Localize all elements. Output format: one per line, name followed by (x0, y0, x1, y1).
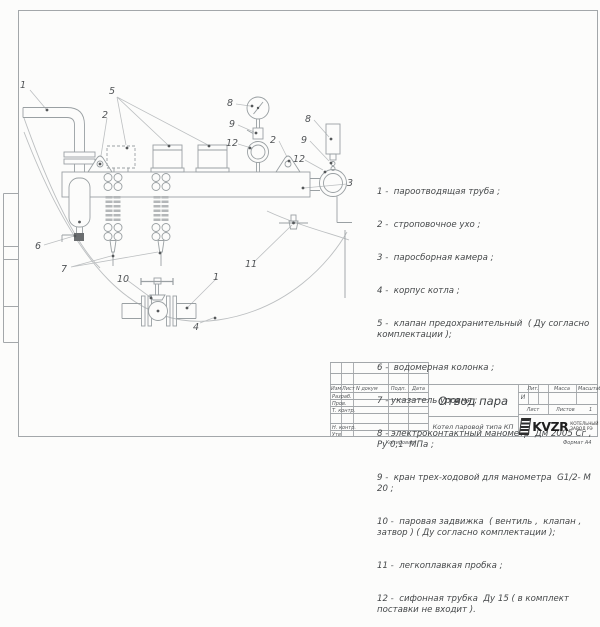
callout-boiler-body: 4 (193, 322, 199, 333)
legend-item-1: 1 - пароотводящая труба ; (377, 187, 600, 198)
steam-outlet-schematic (23, 97, 352, 326)
tb-row-razrab: Разраб. (332, 394, 352, 400)
legend-item-4: 4 - корпус котла ; (377, 286, 600, 297)
water-gauge-column (62, 178, 90, 242)
callout-chamber: 3 (347, 178, 353, 189)
callout-water-column: 6 (35, 241, 41, 252)
kvzr-logo-caption: КОТЕЛЬНЫЙ ЗАВОД РЭ (570, 422, 600, 432)
legend-item-11: 11 - легкоплавкая пробка ; (377, 561, 600, 572)
callout-siphon-front: 12 (226, 138, 238, 149)
tb-row-utv: Утв (332, 432, 341, 438)
tb-massa-label: Масса (548, 386, 576, 392)
tb-list-label: Лист (518, 407, 548, 413)
callout-cock-front: 9 (229, 119, 235, 130)
tb-row-prov: Пров. (332, 401, 347, 407)
footer-kopiroval: Копировал (360, 440, 440, 446)
document-subtitle: Котел паровой типа КП (428, 423, 518, 431)
callout-manometer-front: 8 (227, 98, 233, 109)
gate-valve (122, 278, 196, 326)
legend-item-12: 12 - сифонная трубка Ду 15 ( в комплект … (377, 594, 600, 616)
logo-caption-line2: ЗАВОД РЭ (570, 427, 592, 432)
callout-gate-valve: 10 (117, 274, 129, 285)
tb-lit-label: Лит. (518, 386, 548, 392)
callout-fusible-plug: 11 (245, 259, 257, 270)
callout-lug-right: 2 (270, 135, 276, 146)
kvzr-logo-icon (519, 418, 532, 435)
kvzr-logo-text: KVZR (532, 419, 568, 434)
steam-pipe (23, 108, 95, 173)
callout-safety-valves: 5 (109, 86, 115, 97)
callout-lug-left: 2 (102, 110, 108, 121)
tb-col-izm: Изм (331, 386, 341, 392)
document-title: Отвод пара (429, 394, 517, 408)
footer-format: Формат А4 (563, 440, 600, 446)
legend-item-10: 10 - паровая задвижка ( вентиль , клапан… (377, 517, 600, 539)
drawing-sheet: { "legend": { "items": [ "1 - пароотводя… (0, 0, 600, 450)
tb-listov-value: 1 (589, 407, 592, 413)
callout-siphon-side: 12 (293, 154, 305, 165)
callout-level-indicator: 7 (61, 264, 67, 275)
tb-col-podp: Подп. (389, 386, 408, 392)
tb-col-data: Дата (409, 386, 428, 392)
level-indicator-left (104, 174, 122, 267)
legend-item-9: 9 - кран трех-ходовой для манометра G1/2… (377, 473, 600, 495)
tb-col-list: Лист (342, 386, 353, 392)
manufacturer-logo: KVZR КОТЕЛЬНЫЙ ЗАВОД РЭ (520, 416, 600, 437)
legend-item-6: 6 - водомерная колонка ; (377, 363, 600, 374)
legend-item-3: 3 - паросборная камера ; (377, 253, 600, 264)
lifting-lugs (88, 156, 300, 172)
callout-pipe-bottom: 1 (213, 272, 219, 283)
tb-lit-value: И (518, 394, 528, 401)
safety-valves (107, 145, 229, 172)
tb-row-nkontr: Н. контр. (332, 425, 356, 431)
steam-chamber (62, 172, 310, 197)
tb-masshtab-label: Масштаб (578, 386, 600, 392)
tb-listov-label: Листов (556, 407, 575, 413)
legend-item-5: 5 - клапан предохранительный ( Ду соглас… (377, 319, 600, 341)
tb-col-dokum: N докум (356, 386, 388, 392)
legend-item-2: 2 - строповочное ухо ; (377, 220, 600, 231)
callout-cock-side: 9 (301, 135, 307, 146)
tb-row-tkontr: Т. контр. (332, 408, 355, 414)
callout-manometer-side: 8 (305, 114, 311, 125)
callout-pipe-top: 1 (20, 80, 26, 91)
